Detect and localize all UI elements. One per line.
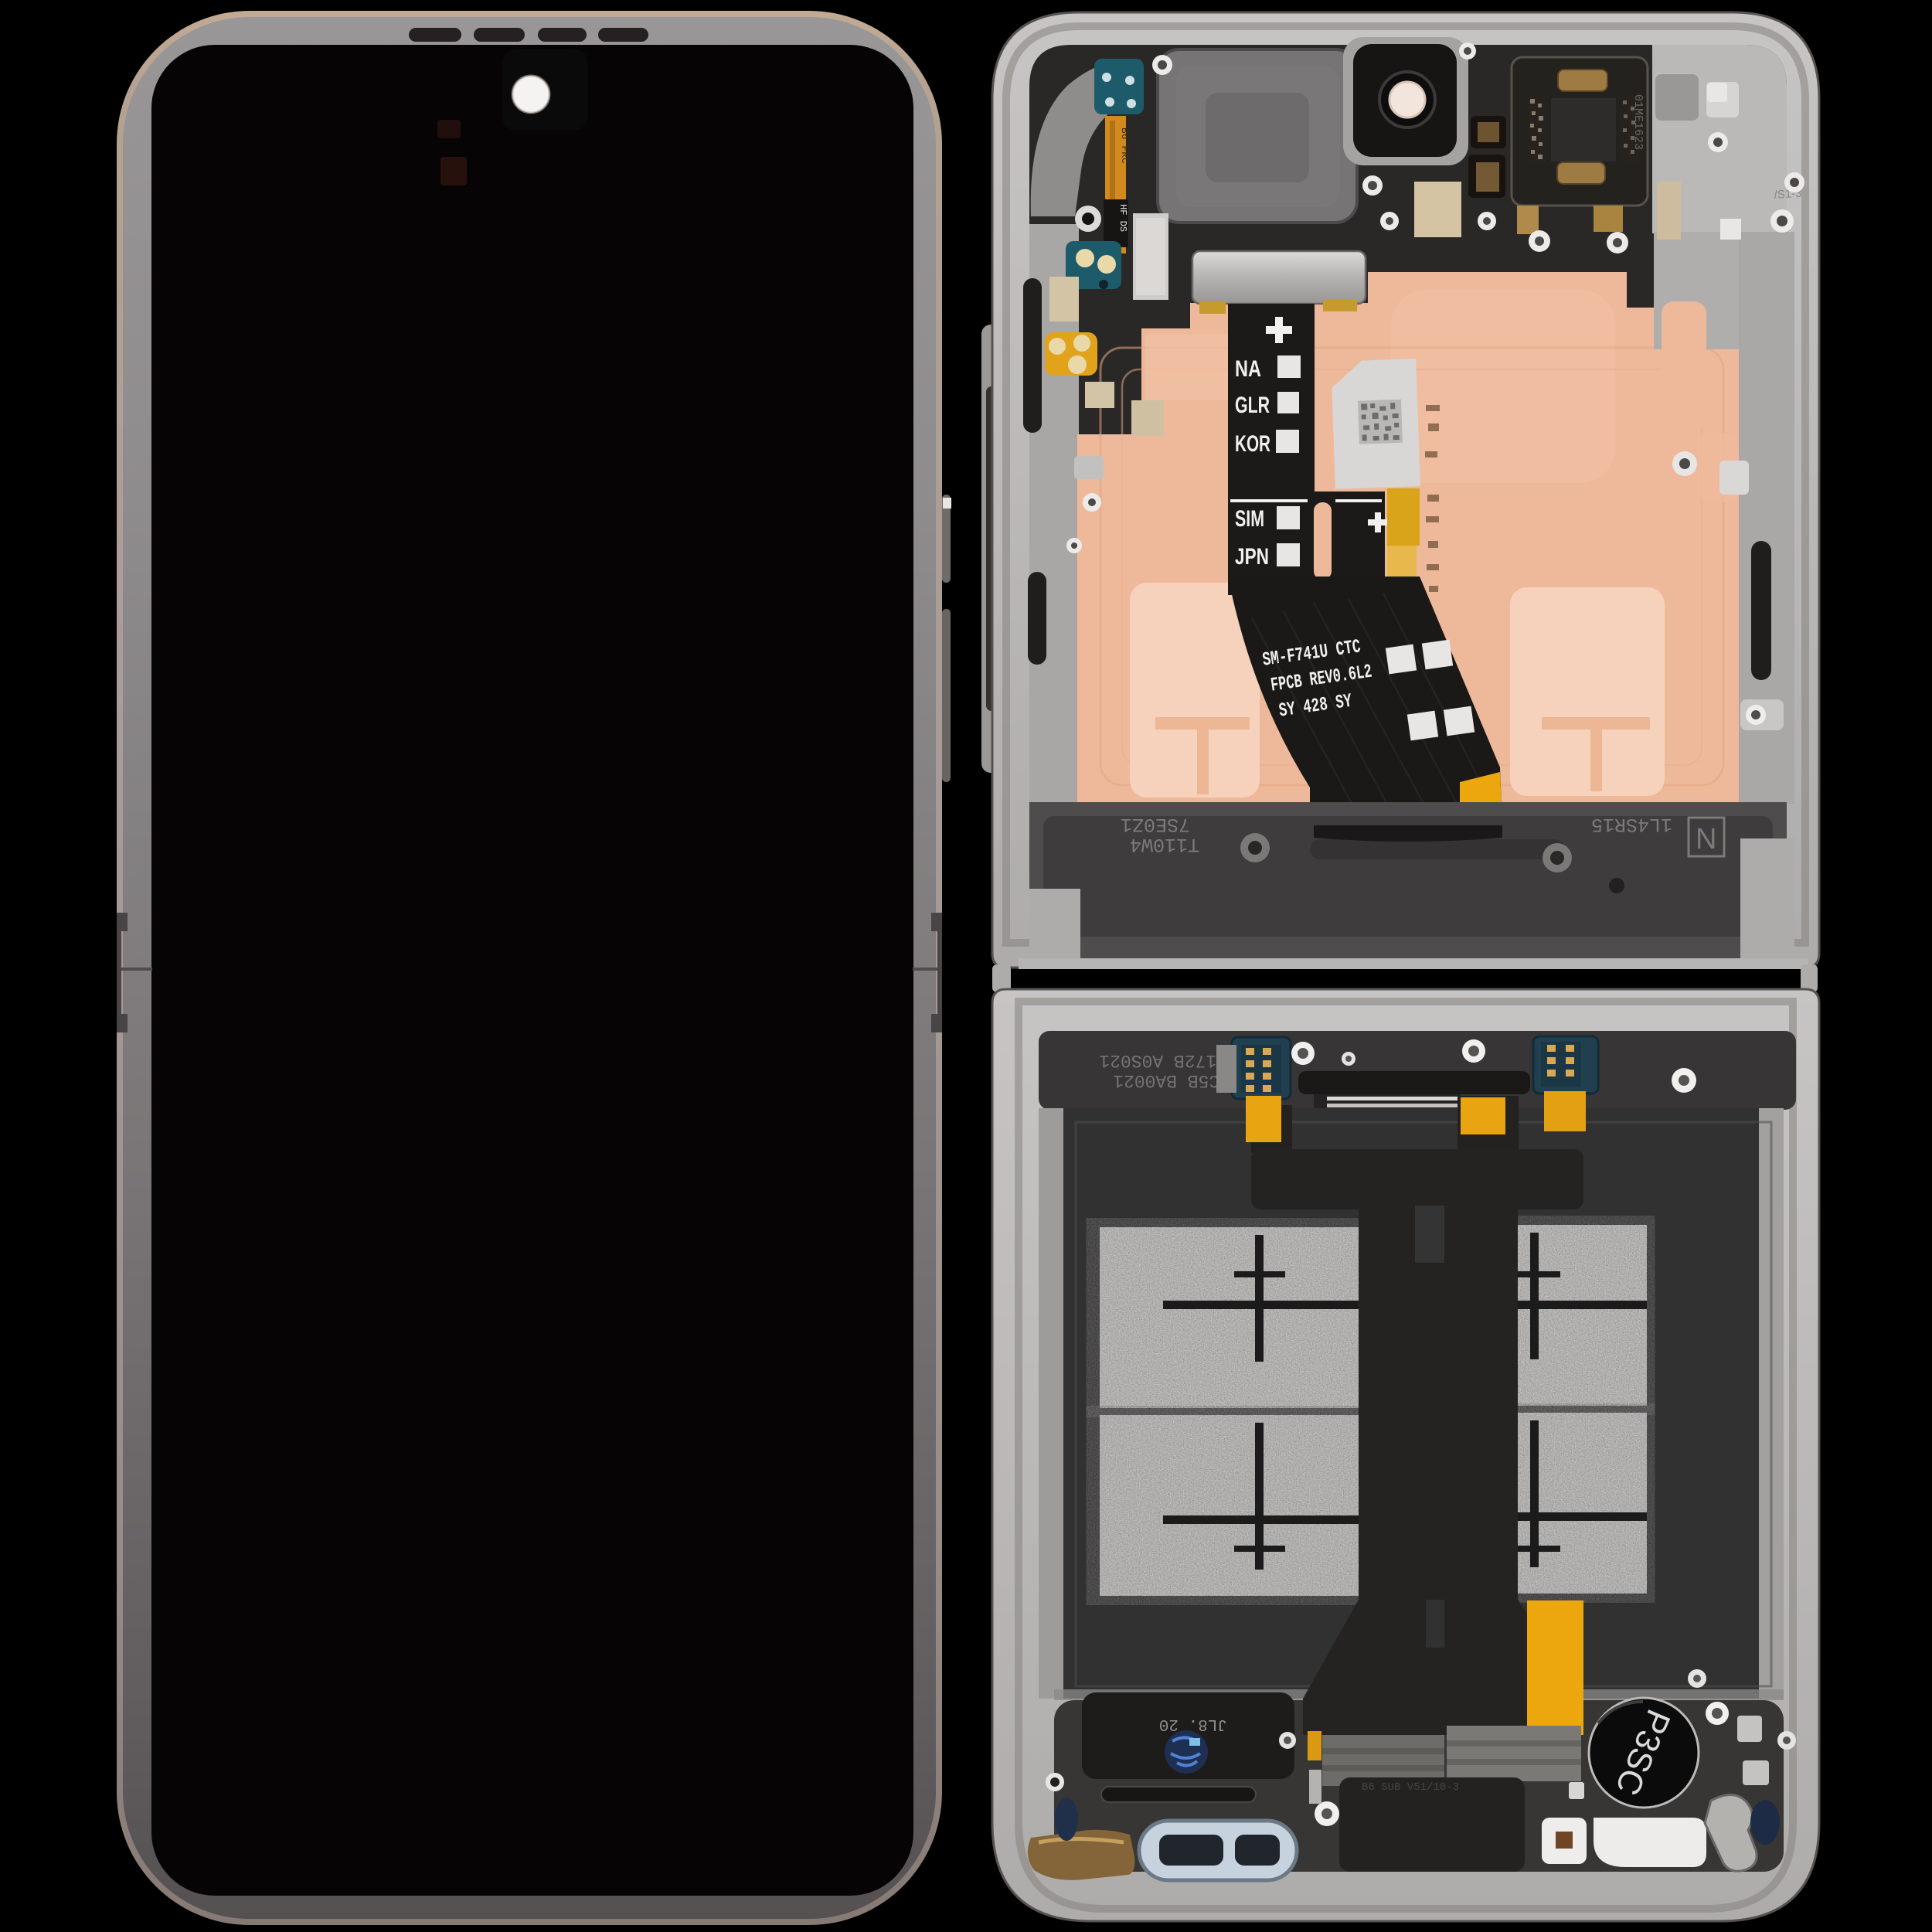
svg-text:JPN: JPN	[1235, 544, 1269, 570]
svg-text:T110W4: T110W4	[1130, 833, 1199, 855]
svg-text:7SE0Z1: 7SE0Z1	[1121, 813, 1190, 835]
svg-text:SIM: SIM	[1235, 506, 1264, 532]
svg-text:T172B A0S021: T172B A0S021	[1099, 1050, 1227, 1070]
svg-text:01ME1623: 01ME1623	[1631, 94, 1645, 150]
svg-text:HF DS: HF DS	[1117, 204, 1128, 232]
svg-text:NA: NA	[1235, 356, 1261, 382]
svg-text:3C5B BA0021: 3C5B BA0021	[1113, 1070, 1230, 1090]
svg-text:GLR: GLR	[1235, 393, 1270, 418]
svg-text:1L4SR15: 1L4SR15	[1591, 813, 1672, 835]
svg-text:B6 SUB V51/10-3: B6 SUB V51/10-3	[1362, 1781, 1459, 1794]
svg-text:KOR: KOR	[1235, 431, 1270, 457]
svg-text:JL8. 20: JL8. 20	[1159, 1715, 1227, 1733]
svg-text:N: N	[1696, 823, 1716, 855]
svg-text:B6 FRC: B6 FRC	[1119, 128, 1131, 164]
